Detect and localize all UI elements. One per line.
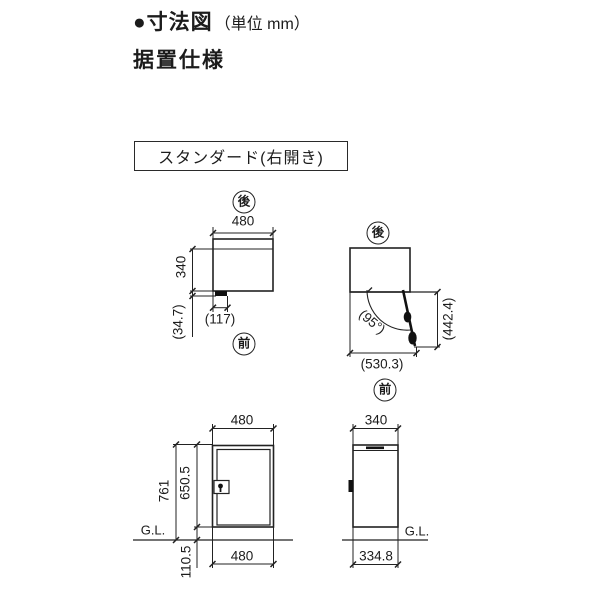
title-text: ●寸法図 — [133, 6, 213, 36]
plan-depth-dim: 340 — [174, 256, 188, 279]
front-width-top-dim: 480 — [231, 413, 254, 427]
dimension-diagram-page: { "header": { "title": "●寸法図", "unit_not… — [0, 0, 600, 600]
lid-seam-mark — [366, 447, 384, 450]
door-open-side-dim: (442.4) — [441, 298, 455, 341]
front-base-height-dim: 110.5 — [179, 546, 193, 579]
drawing-lines — [0, 0, 600, 600]
door-hinge-mark — [408, 332, 416, 345]
plan-front-badge: 前 — [233, 333, 256, 356]
lock-plan-mark — [215, 291, 227, 296]
variant-label: スタンダード(右開き) — [134, 141, 348, 171]
swing-back-badge: 後 — [367, 222, 390, 245]
plan-lock-protrusion-dim: (34.7) — [171, 304, 185, 339]
front-width-bottom-dim: 480 — [231, 549, 254, 563]
lock-side-mark — [349, 480, 354, 492]
figure-title: ●寸法図 （単位 mm） — [133, 6, 310, 36]
side-depth-top-dim: 340 — [365, 413, 388, 427]
side-view-lines — [342, 424, 428, 568]
swing-front-badge: 前 — [374, 379, 397, 402]
installation-type-subtitle: 据置仕様 — [133, 44, 225, 74]
plan-back-badge: 後 — [233, 191, 256, 214]
front-total-height-dim: 761 — [157, 480, 171, 503]
plan-width-dim: 480 — [232, 214, 255, 228]
door-open-depth-dim: (530.3) — [361, 357, 404, 371]
door-hinge-mark — [404, 312, 412, 323]
plan-lock-width-dim: (117) — [205, 312, 236, 326]
front-body-height-dim: 650.5 — [178, 466, 192, 500]
side-base-depth-dim: 334.8 — [359, 549, 393, 563]
door-swing-view-lines — [350, 248, 440, 357]
unit-note: （単位 mm） — [215, 10, 310, 34]
front-ground-label: G.L. — [141, 524, 166, 537]
side-ground-label: G.L. — [405, 525, 430, 538]
